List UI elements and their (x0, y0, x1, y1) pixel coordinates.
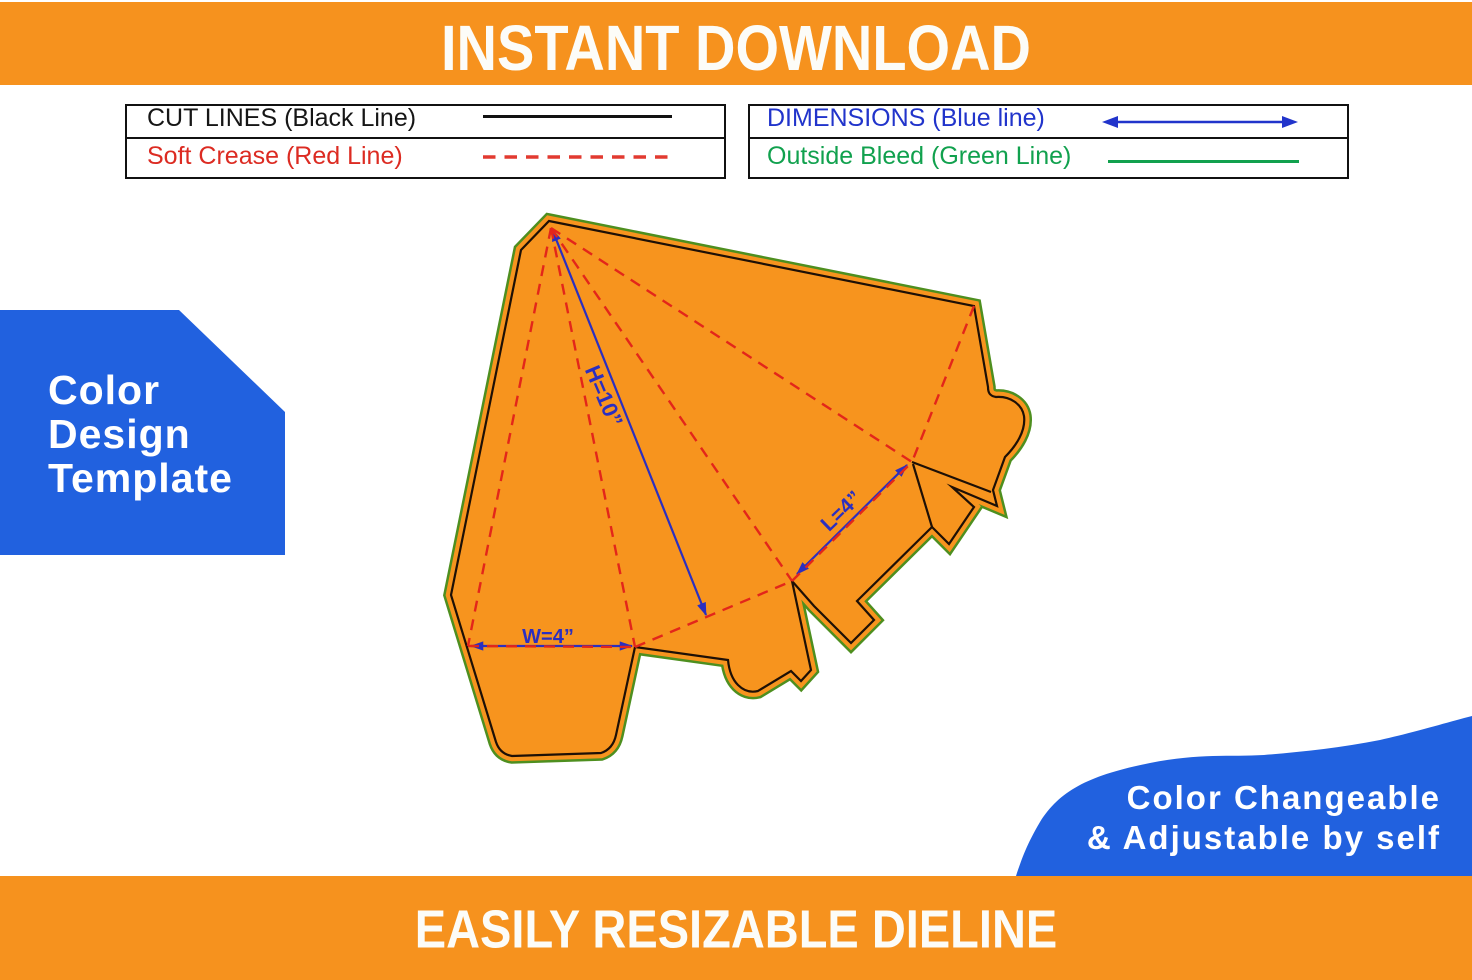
svg-text:W=4”: W=4” (522, 626, 574, 648)
